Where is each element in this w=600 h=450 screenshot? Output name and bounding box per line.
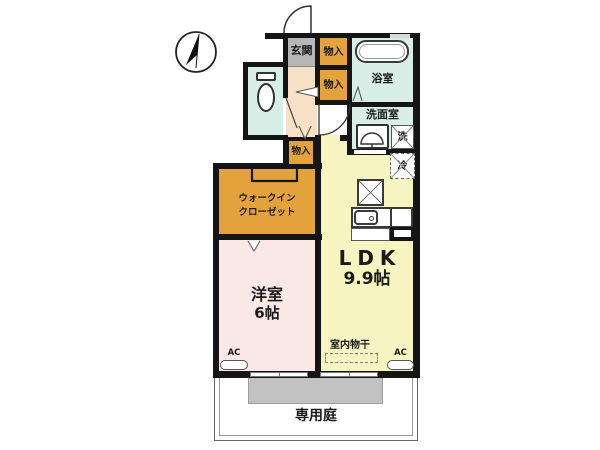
ac-left-label: AC [220, 349, 248, 358]
bathtub-icon [355, 40, 409, 63]
western-room-label: 洋室 [219, 286, 315, 304]
wic-label-line2: クローゼット [219, 208, 315, 218]
wall-wic-bottom [213, 234, 322, 240]
entrance-label: 玄関 [286, 45, 317, 57]
toilet-bowl-icon [257, 83, 275, 112]
entrance-door-arc [284, 6, 311, 33]
storage-mid: 物入 [315, 65, 352, 105]
ac-left-unit [220, 360, 248, 370]
washroom-label: 洗面室 [352, 109, 413, 121]
washroom-door-slot [354, 150, 386, 154]
wall-right [413, 33, 420, 378]
storage-hall-label: 物入 [291, 147, 310, 157]
floor-plan: 専用庭 物入 物入 物入 [0, 0, 600, 450]
window-bedroom [250, 372, 308, 377]
garden-label: 専用庭 [214, 409, 418, 424]
ac-right-unit [387, 360, 414, 370]
bathroom-label: 浴室 [352, 73, 413, 85]
compass-icon [176, 32, 216, 72]
terrace [248, 374, 383, 404]
storage-mid-label: 物入 [324, 80, 344, 91]
wic-label-line1: ウォークイン [219, 194, 315, 204]
wall-toilet-left [243, 62, 248, 140]
kitchen-wall-slit [394, 230, 411, 237]
indoor-drying-label: 室内物干 [320, 340, 380, 351]
wall-bottom [213, 371, 420, 378]
kitchen-lower-cabinet [351, 228, 390, 241]
ac-right-label: AC [387, 349, 414, 358]
wall-toilet-top [243, 62, 288, 67]
window-mullion [279, 373, 280, 376]
indoor-drying-box [325, 353, 378, 363]
faucet-icon [369, 216, 374, 221]
kitchen-sink-icon [354, 210, 378, 225]
wall-vestibule-stub [340, 135, 352, 141]
window-bath [390, 34, 410, 38]
kitchen-wall-block [390, 227, 415, 241]
washer-box: 洗 [391, 125, 414, 149]
window-ldk [320, 372, 378, 377]
ldk-size-label: 9.9帖 [322, 270, 412, 289]
vestibule [317, 105, 347, 135]
toilet-tank-icon [256, 72, 276, 81]
western-room-size-label: 6帖 [219, 305, 315, 322]
sink-icon [356, 124, 389, 149]
wall-top-stub [265, 33, 285, 39]
fridge-box: 冷 [390, 153, 415, 179]
storage-hall: 物入 [285, 137, 317, 168]
wall-bath-bottom [347, 102, 420, 107]
ldk-label: LDK [322, 247, 412, 269]
wall-toilet-bottom [243, 135, 288, 140]
hatch-box [357, 179, 384, 206]
storage-top-label: 物入 [324, 47, 344, 58]
wall-mid-lower [315, 135, 321, 371]
bathtub-inner-line [359, 44, 405, 59]
kitchen-divider [390, 209, 392, 226]
window-mullion [349, 373, 350, 376]
